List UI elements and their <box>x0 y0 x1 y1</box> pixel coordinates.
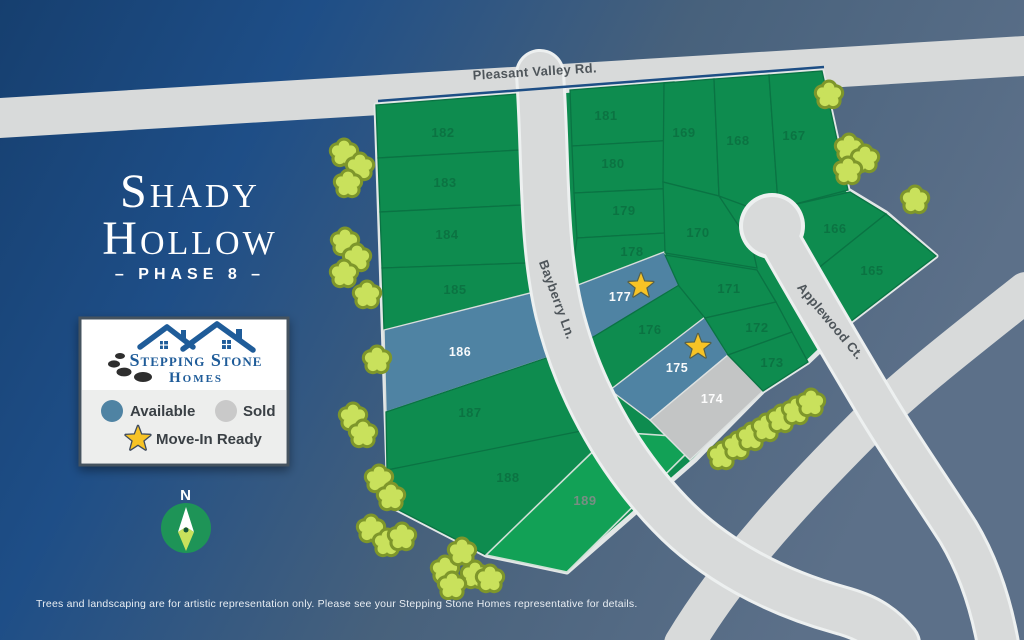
lot-label: 174 <box>701 392 723 406</box>
lot-label: 166 <box>823 221 846 236</box>
lot-label: 180 <box>601 156 624 171</box>
lot-label: 176 <box>638 322 661 337</box>
culdesac-bulb <box>743 197 801 255</box>
lot-label: 170 <box>686 225 709 240</box>
compass-pivot <box>184 528 189 533</box>
legend-card: Stepping Stone Homes Available Sold Move… <box>80 318 288 465</box>
available-swatch-icon <box>101 400 123 422</box>
move-in-ready-label: Move-In Ready <box>156 431 263 448</box>
lot-label: 167 <box>782 128 805 143</box>
lot-label: 172 <box>745 320 768 335</box>
logo-name-line-1: Stepping Stone <box>130 350 263 370</box>
community-title: Shady Hollow – PHASE 8 – <box>102 165 277 283</box>
disclaimer-text: Trees and landscaping are for artistic r… <box>36 598 637 610</box>
lot-label: 188 <box>496 470 519 485</box>
lot-label: 185 <box>443 282 466 297</box>
lot-label: 181 <box>594 108 617 123</box>
lot-label: 165 <box>860 263 883 278</box>
lot-label: 168 <box>726 133 749 148</box>
title-line-2: Hollow <box>102 212 277 265</box>
lot-label: 184 <box>435 227 458 242</box>
sold-swatch-icon <box>215 400 237 422</box>
lot-label: 171 <box>717 281 740 296</box>
phase-label: – PHASE 8 – <box>115 266 265 283</box>
lot-label: 178 <box>620 244 643 259</box>
lot-label: 186 <box>449 345 471 359</box>
lot-label: 182 <box>431 125 454 140</box>
site-map-canvas: 182 183 184 185 186 187 188 189 181 180 … <box>0 0 1024 640</box>
lot-label: 189 <box>573 493 596 508</box>
logo-name-line-2: Homes <box>169 370 223 386</box>
lot-label: 183 <box>433 175 456 190</box>
site-map-page: 182 183 184 185 186 187 188 189 181 180 … <box>0 0 1024 640</box>
available-label: Available <box>130 403 195 420</box>
lot-label: 169 <box>672 125 695 140</box>
sold-label: Sold <box>243 403 276 420</box>
lot-181-shape <box>570 82 677 146</box>
title-line-1: Shady <box>120 165 260 218</box>
lot-label: 177 <box>609 290 631 304</box>
lot-label: 187 <box>458 405 481 420</box>
lot-label: 175 <box>666 361 688 375</box>
lot-label: 173 <box>760 355 783 370</box>
compass-north-label: N <box>180 487 192 504</box>
lot-label: 179 <box>612 203 635 218</box>
